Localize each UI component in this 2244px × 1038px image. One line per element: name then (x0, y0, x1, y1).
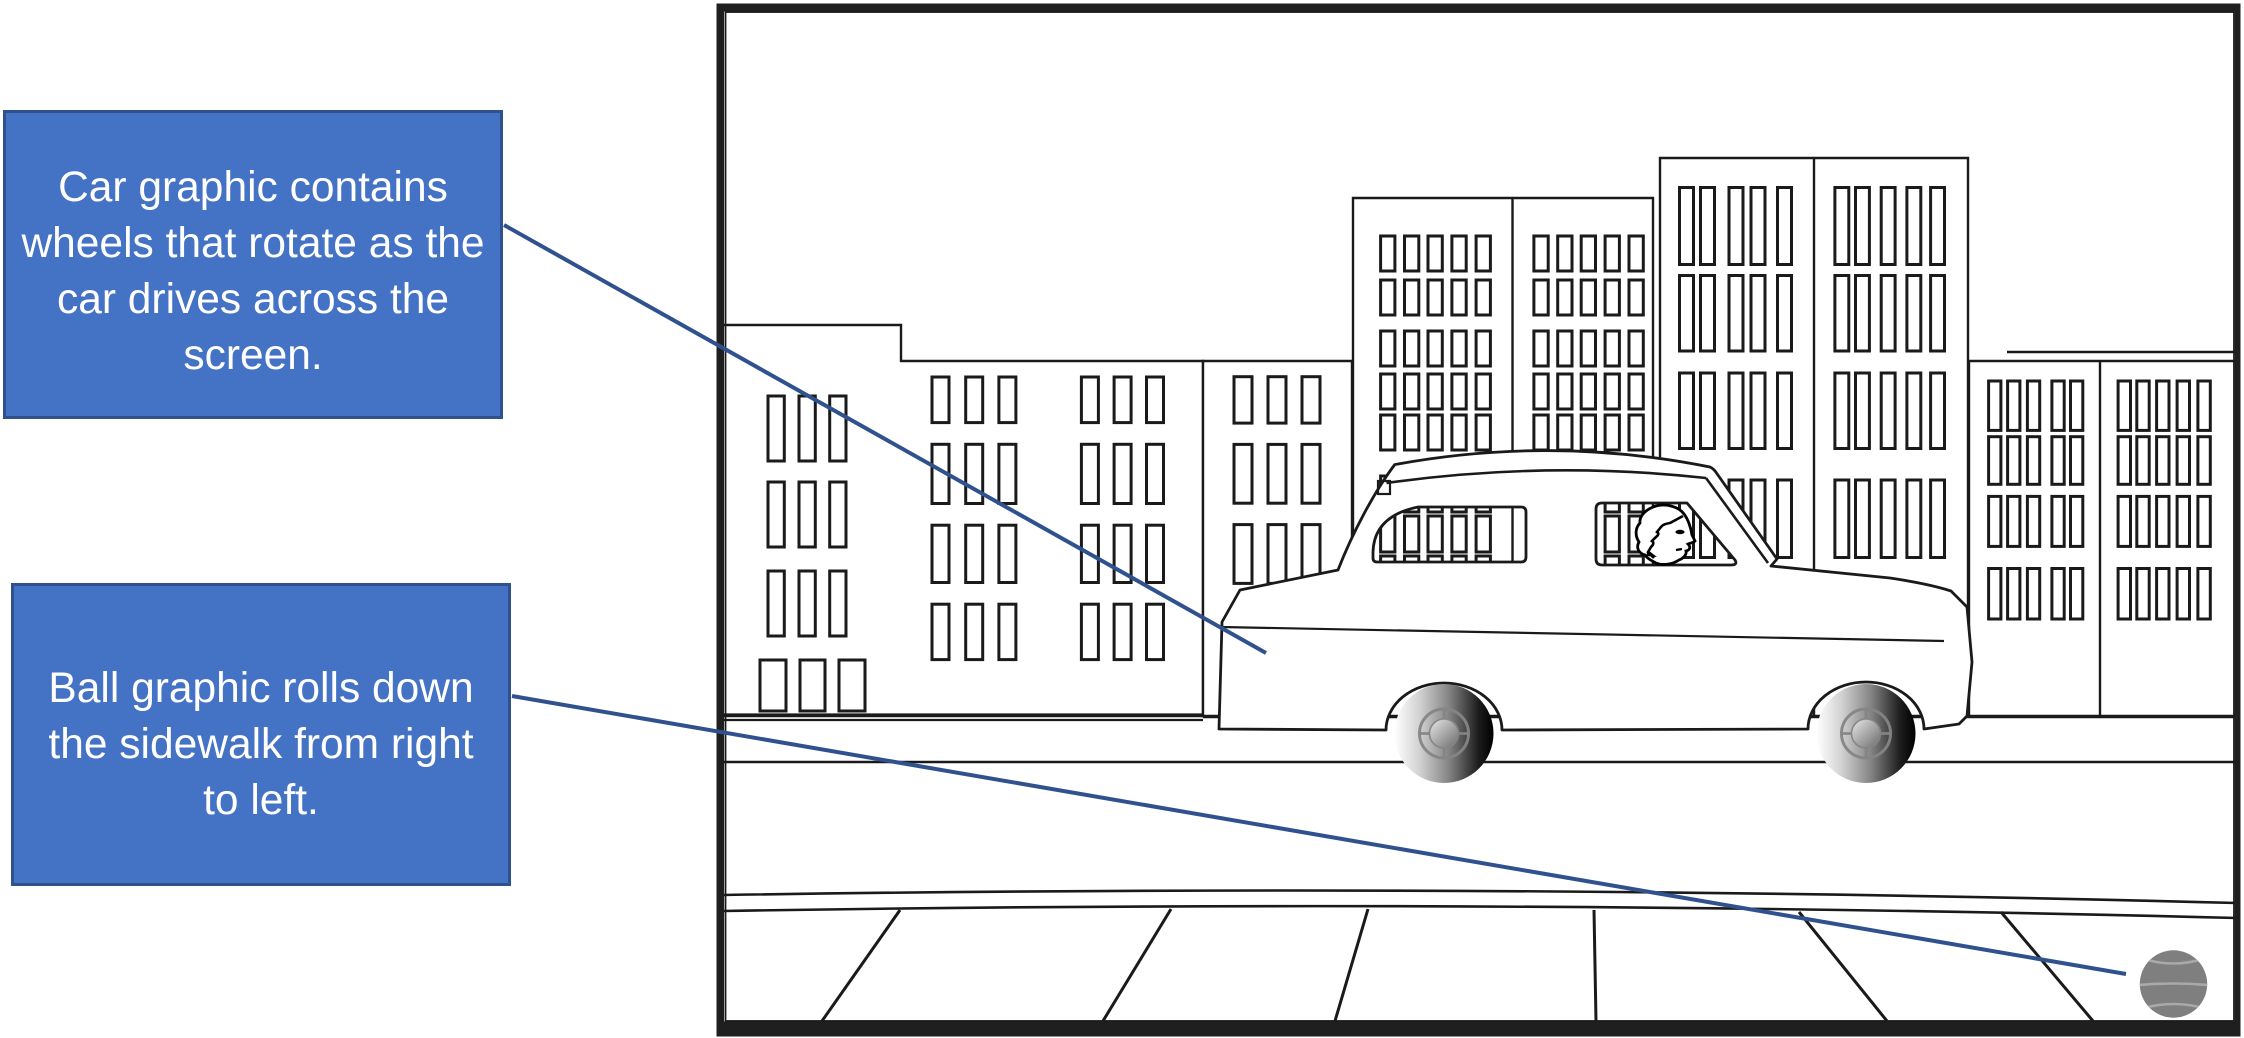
svg-text:wheels that rotate as the: wheels that rotate as the (20, 220, 484, 267)
svg-text:Ball graphic rolls down: Ball graphic rolls down (48, 665, 473, 712)
svg-text:Car graphic contains: Car graphic contains (58, 164, 448, 211)
svg-text:car drives across the: car drives across the (57, 276, 449, 323)
svg-text:to left.: to left. (203, 777, 319, 824)
svg-text:the sidewalk from right: the sidewalk from right (48, 721, 473, 768)
svg-text:screen.: screen. (183, 332, 322, 379)
